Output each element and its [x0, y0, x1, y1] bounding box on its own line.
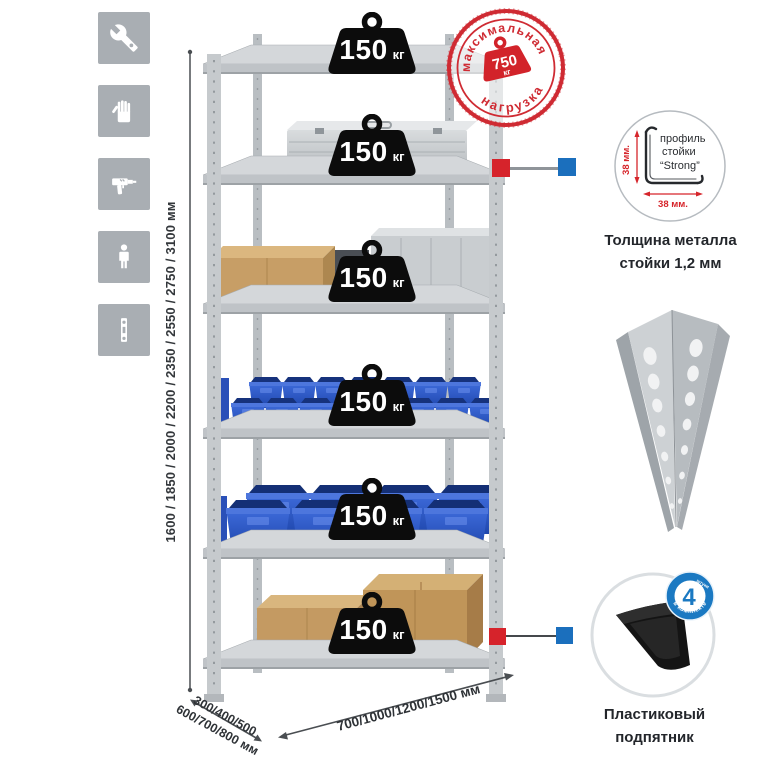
person-icon: [109, 242, 139, 272]
gloves-tile: [98, 85, 150, 137]
callout-marker-blue-top: [558, 158, 576, 176]
profile-caption: Толщина металла стойки 1,2 мм: [578, 230, 763, 275]
profile-caption-line2: стойки 1,2 мм: [578, 253, 763, 276]
person-tile: [98, 231, 150, 283]
product-infographic: 1600 / 1850 / 2000 / 2200 / 2350 / 2550 …: [0, 0, 765, 765]
shelf-load-unit: кг: [393, 47, 405, 62]
profile-strip-icon: [109, 315, 139, 345]
weight-150kg: 150кг: [312, 478, 432, 544]
weight-150kg: 150кг: [312, 12, 432, 78]
assembly-wrench-tile: [98, 12, 150, 64]
wrench-icon: [109, 23, 139, 53]
profile-label-line3: “Strong”: [660, 160, 700, 172]
foot-caption-line2: подпятник: [567, 727, 742, 750]
weight-150kg: 150кг: [312, 592, 432, 658]
weight-150kg: 150кг: [312, 364, 432, 430]
profile-label-line1: профиль: [660, 133, 706, 145]
gloves-icon: [109, 96, 139, 126]
included-count-badge: 4 штуки в комплекте: [664, 570, 716, 622]
profile-strip-tile: [98, 304, 150, 356]
drill-tile: [98, 158, 150, 210]
callout-marker-red-top: [492, 159, 510, 177]
callout-line-top: [510, 167, 559, 170]
vertical-dim-label: 38 мм.: [621, 145, 632, 175]
profile-detail-circle: 38 мм. 38 мм. профиль стойки “Strong”: [608, 106, 732, 230]
shelf-load-value: 150: [339, 34, 387, 66]
callout-marker-blue-bottom: [556, 627, 573, 644]
callout-marker-red-bottom: [489, 628, 506, 645]
weight-150kg: 150кг: [312, 240, 432, 306]
height-dimension-label: 1600 / 1850 / 2000 / 2200 / 2350 / 2550 …: [163, 47, 181, 697]
horizontal-dim-label: 38 мм.: [658, 199, 688, 210]
max-load-stamp: максимальная нагрузка 750 кг: [432, 0, 581, 142]
profile-caption-line1: Толщина металла: [578, 230, 763, 253]
foot-caption: Пластиковый подпятник: [567, 704, 742, 749]
corner-post-image: [598, 296, 748, 541]
drill-icon: [109, 169, 139, 199]
profile-label-line2: стойки: [662, 146, 696, 158]
foot-caption-line1: Пластиковый: [567, 704, 742, 727]
weight-150kg: 150кг: [312, 114, 432, 180]
badge-count: 4: [682, 584, 696, 611]
callout-line-bottom: [506, 635, 557, 637]
